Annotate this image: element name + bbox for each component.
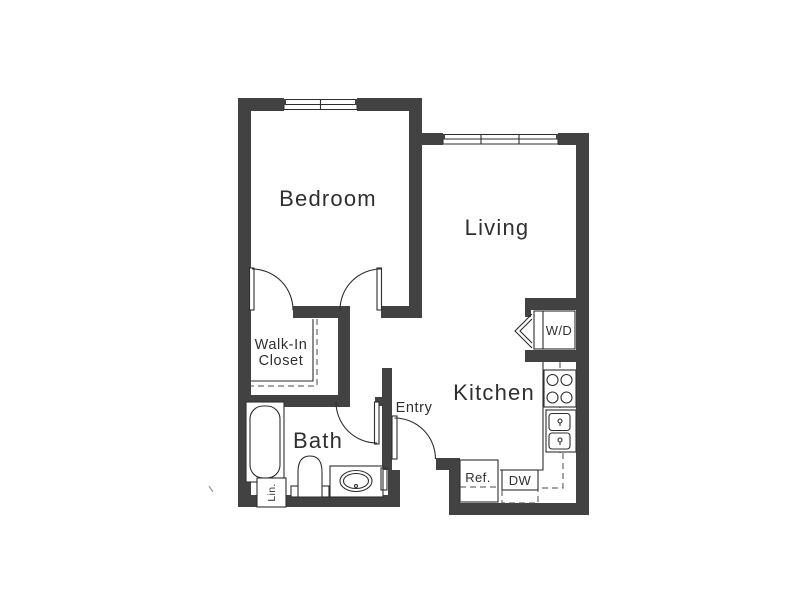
closet-door-leaf [250, 268, 255, 310]
washer-dryer-label: W/D [546, 323, 572, 338]
bedroom-label: Bedroom [279, 186, 377, 211]
wall-kitchen-bottom [449, 503, 589, 515]
bedroom-door-arc [340, 269, 381, 310]
wall-bath-entry-stub [382, 368, 392, 470]
wall-wd-closet-top [525, 298, 576, 310]
entry-door-arc [395, 418, 436, 459]
kitchen-label: Kitchen [453, 380, 535, 405]
dishwasher-label: DW [509, 473, 532, 488]
closet-door-arc [252, 269, 293, 310]
wd-bifold-door [515, 314, 532, 348]
bedroom-window [283, 99, 358, 110]
wall-living-top-left [409, 133, 443, 145]
floor-plan-drawing: Bedroom Living Kitchen Bath Walk-In Clos… [0, 0, 800, 600]
walk-in-closet-label-line2: Closet [259, 353, 304, 369]
walls [238, 98, 589, 515]
toilet [291, 456, 329, 497]
vanity-sink [330, 466, 387, 497]
living-label: Living [465, 215, 530, 240]
bedroom-door-leaf [377, 268, 382, 310]
entry-door-leaf [392, 416, 397, 459]
bath-label: Bath [293, 428, 343, 453]
refrigerator-label: Ref. [465, 470, 490, 485]
walk-in-closet-label-line1: Walk-In [255, 337, 308, 353]
entry-door [392, 416, 436, 459]
bathtub [246, 402, 284, 482]
bedroom-door [340, 268, 382, 310]
floor-plan-page: Bedroom Living Kitchen Bath Walk-In Clos… [0, 0, 800, 600]
wall-right-exterior [576, 133, 589, 515]
closet-door [250, 268, 294, 310]
kitchen-sink [546, 410, 576, 452]
wall-bedroom-living-divider [409, 98, 422, 318]
stove [544, 370, 576, 407]
wall-closet-right [338, 306, 350, 407]
linen-label: Lin. [266, 483, 278, 501]
bath-door-leaf [375, 402, 380, 444]
wall-bedroom-bottom-right [381, 306, 422, 318]
wall-wd-closet-bottom [525, 350, 576, 362]
entry-label: Entry [396, 400, 433, 416]
living-window [442, 134, 559, 144]
kitchen-counter-edge [500, 362, 543, 470]
scan-speck [209, 486, 213, 492]
